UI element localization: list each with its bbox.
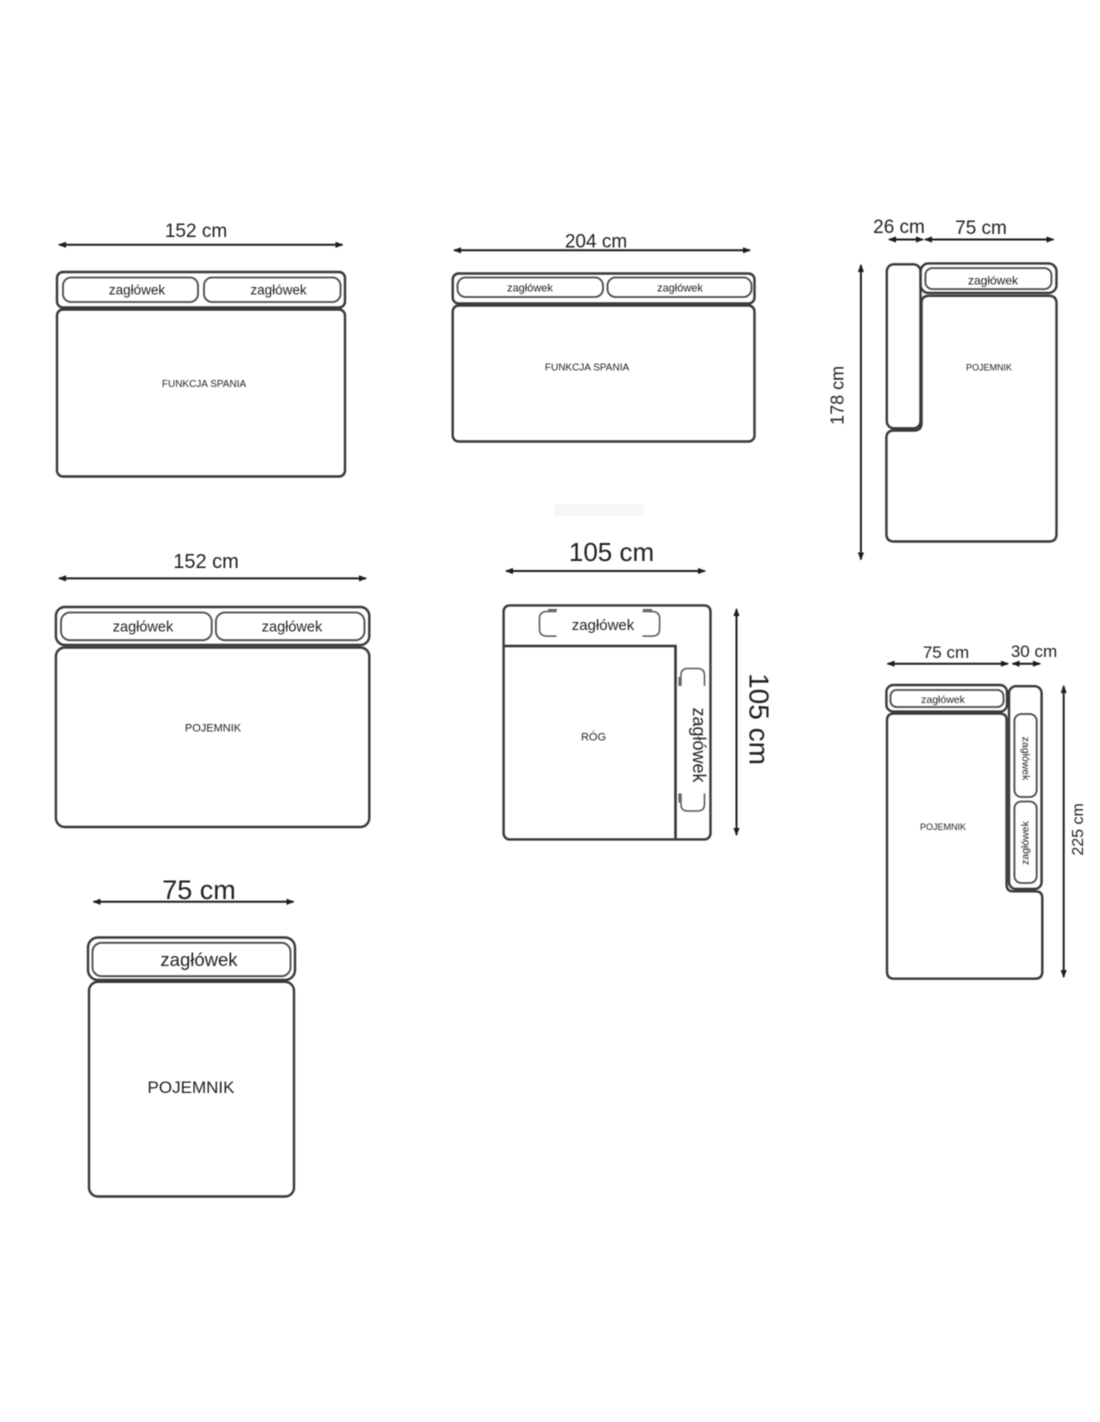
svg-text:POJEMNIK: POJEMNIK [920,822,966,832]
svg-text:26 cm: 26 cm [873,217,925,238]
svg-text:75 cm: 75 cm [162,875,236,905]
svg-text:zagłówek: zagłówek [507,283,553,295]
svg-text:zagłówek: zagłówek [921,694,966,706]
svg-text:zagłówek: zagłówek [1020,820,1032,865]
svg-text:FUNKCJA SPANIA: FUNKCJA SPANIA [162,379,247,390]
svg-text:75 cm: 75 cm [923,643,969,662]
svg-text:zagłówek: zagłówek [689,707,709,783]
svg-text:152 cm: 152 cm [173,551,239,573]
svg-text:105 cm: 105 cm [569,537,654,567]
svg-text:75 cm: 75 cm [955,218,1007,239]
svg-text:zagłówek: zagłówek [1020,737,1032,782]
svg-text:105 cm: 105 cm [744,673,775,765]
svg-text:zagłówek: zagłówek [262,620,323,636]
svg-text:RÓG: RÓG [581,731,606,744]
svg-text:152 cm: 152 cm [165,221,227,242]
svg-text:zagłówek: zagłówek [968,274,1019,288]
svg-text:POJEMNIK: POJEMNIK [148,1078,236,1097]
svg-text:zagłówek: zagłówek [657,283,703,295]
svg-text:225 cm: 225 cm [1070,803,1087,855]
svg-text:zagłówek: zagłówek [113,620,174,636]
svg-text:zagłówek: zagłówek [160,949,238,970]
svg-text:POJEMNIK: POJEMNIK [185,723,242,735]
svg-text:30 cm: 30 cm [1011,642,1057,661]
svg-text:zagłówek: zagłówek [250,283,307,298]
svg-text:178 cm: 178 cm [828,366,848,425]
svg-text:zagłówek: zagłówek [572,617,635,634]
svg-text:zagłówek: zagłówek [109,283,166,298]
svg-text:POJEMNIK: POJEMNIK [966,363,1012,373]
svg-text:FUNKCJA SPANIA: FUNKCJA SPANIA [545,363,630,374]
